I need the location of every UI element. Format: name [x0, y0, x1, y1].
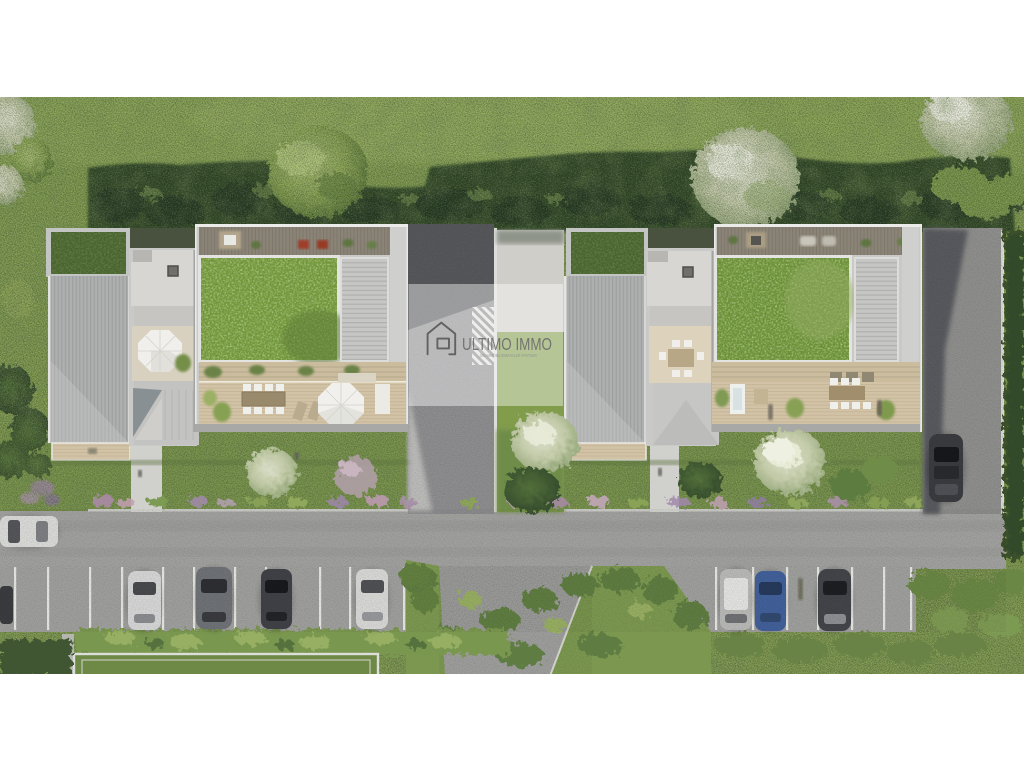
svg-text:DIE IMMOBILIENMAKLER PARTNER: DIE IMMOBILIENMAKLER PARTNER [480, 353, 537, 358]
svg-text:ULTIMO IMMO: ULTIMO IMMO [462, 334, 552, 354]
